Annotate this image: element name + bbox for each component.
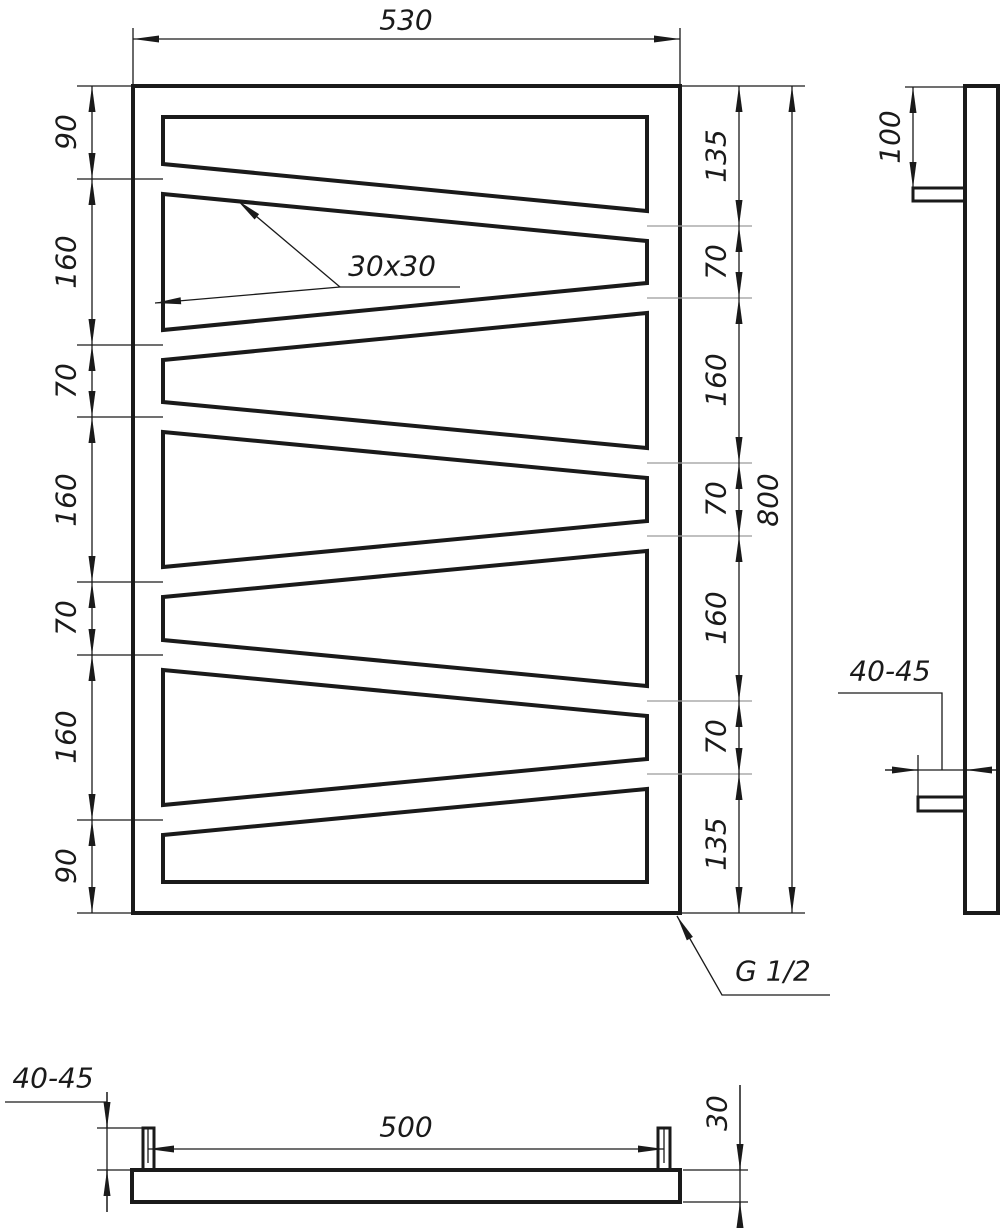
dim-label-tube-profile: 30x30 bbox=[348, 250, 436, 283]
dim-label-top-width: 530 bbox=[379, 4, 432, 37]
dim-label-right-6: 70 bbox=[700, 719, 733, 755]
dim-label-right-3: 160 bbox=[700, 353, 733, 406]
towel-rail-drawing: 530 90 160 70 160 70 160 90 bbox=[0, 0, 1000, 1230]
technical-drawing-page: 530 90 160 70 160 70 160 90 bbox=[0, 0, 1000, 1230]
dimension-bracket-spacing: 500 bbox=[148, 1111, 664, 1164]
side-view bbox=[913, 86, 998, 913]
dim-label-left-6: 160 bbox=[50, 710, 83, 763]
dim-label-side-offset: 100 bbox=[874, 110, 907, 163]
side-tube-outline bbox=[965, 86, 998, 913]
front-view bbox=[133, 86, 680, 913]
dim-label-left-2: 160 bbox=[50, 235, 83, 288]
side-bottom-bracket bbox=[918, 797, 966, 811]
dim-label-overall-height: 800 bbox=[752, 473, 785, 526]
dimension-bottom-wall-clearance: 40-45 bbox=[5, 1062, 143, 1213]
dim-label-left-3: 70 bbox=[50, 363, 83, 399]
dim-label-right-5: 160 bbox=[700, 591, 733, 644]
dim-label-left-5: 70 bbox=[50, 600, 83, 636]
dim-label-right-1: 135 bbox=[700, 129, 733, 182]
dim-label-left-7: 90 bbox=[50, 848, 83, 884]
dim-label-tube-depth: 30 bbox=[701, 1095, 734, 1131]
dim-label-bottom-clearance: 40-45 bbox=[12, 1062, 93, 1095]
dimension-side-bracket-offset: 100 bbox=[874, 87, 966, 188]
dim-label-thread: G 1/2 bbox=[735, 955, 811, 988]
dim-label-right-4: 70 bbox=[700, 481, 733, 517]
dim-label-bracket-spacing: 500 bbox=[379, 1111, 432, 1144]
callout-thread: G 1/2 bbox=[677, 916, 830, 995]
side-top-bracket bbox=[913, 188, 965, 201]
dim-label-left-4: 160 bbox=[50, 473, 83, 526]
dim-label-left-1: 90 bbox=[50, 114, 83, 150]
dimension-overall-height: 800 bbox=[752, 86, 793, 913]
dim-label-right-7: 135 bbox=[700, 817, 733, 870]
dim-label-side-clearance: 40-45 bbox=[849, 655, 930, 688]
dimension-tube-depth: 30 bbox=[683, 1085, 748, 1215]
dim-label-right-2: 70 bbox=[700, 244, 733, 280]
bottom-tube-outline bbox=[132, 1170, 680, 1202]
dimension-top-width: 530 bbox=[133, 4, 680, 91]
